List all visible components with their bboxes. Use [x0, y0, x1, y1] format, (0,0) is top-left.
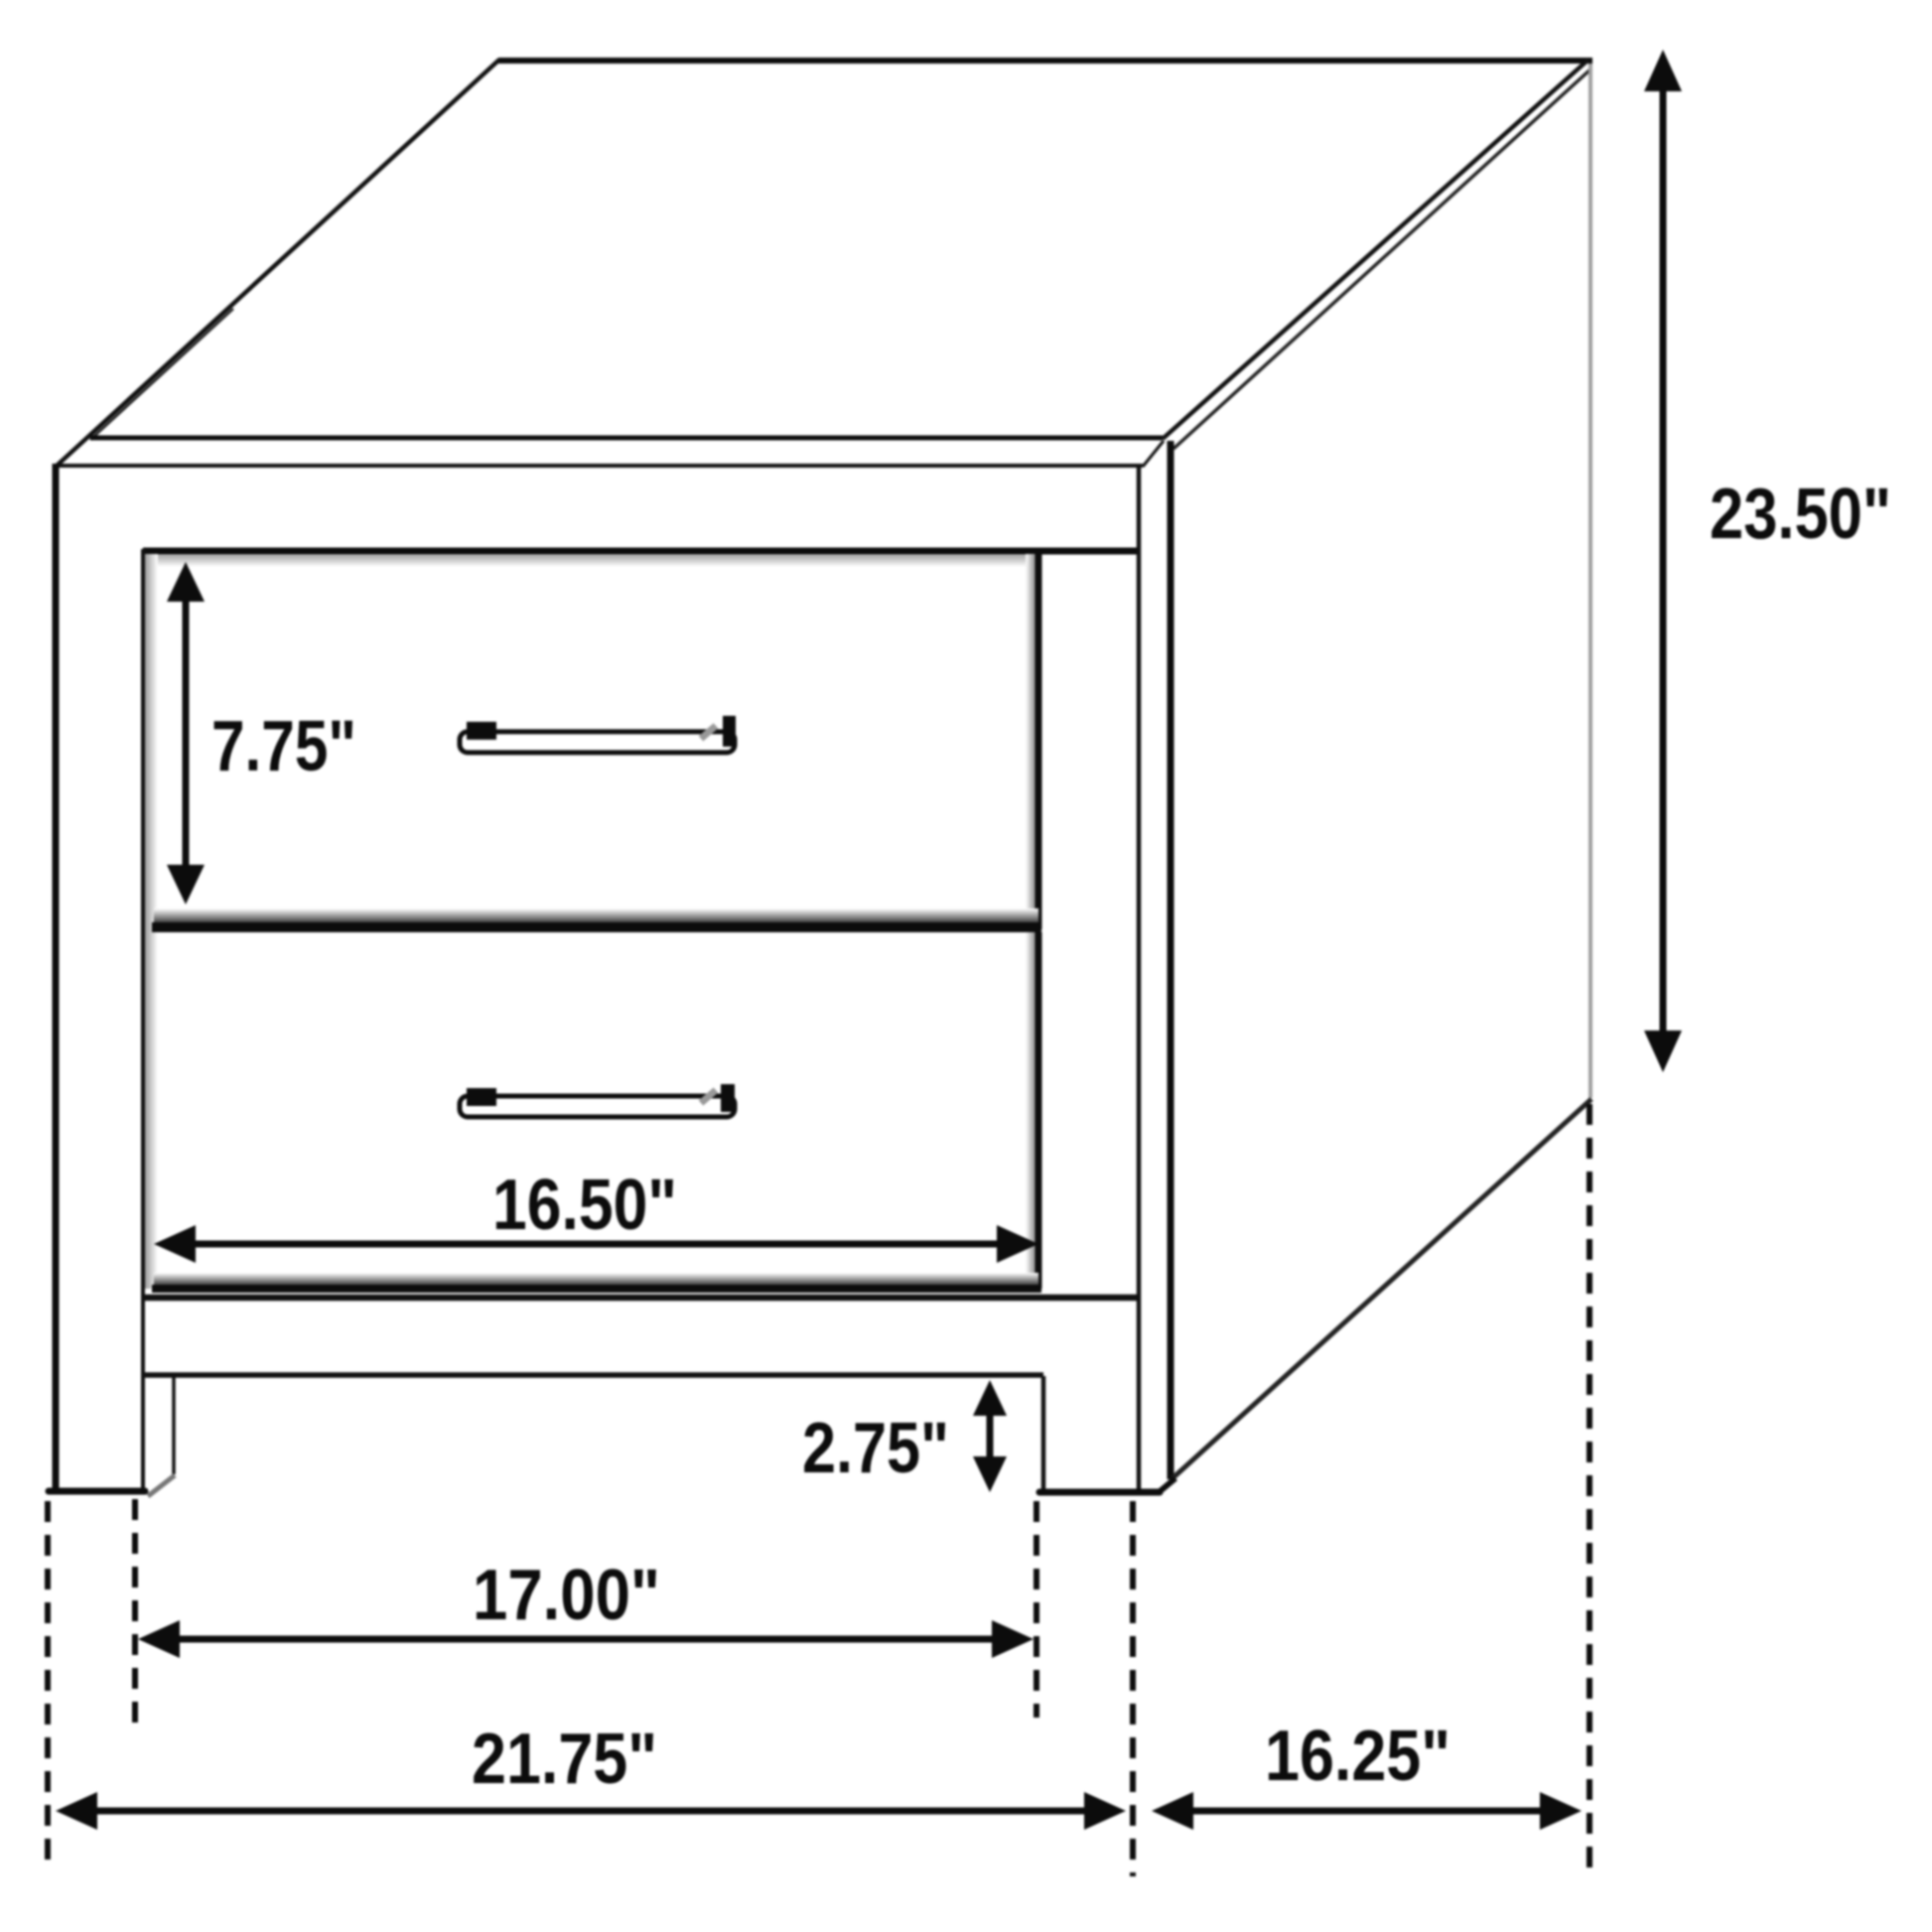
svg-text:2.75": 2.75"	[802, 1409, 949, 1488]
svg-text:16.25": 16.25"	[1265, 1717, 1450, 1796]
svg-text:21.75": 21.75"	[472, 1720, 657, 1799]
svg-text:16.50": 16.50"	[492, 1166, 677, 1245]
svg-text:17.00": 17.00"	[473, 1556, 660, 1635]
svg-text:7.75": 7.75"	[211, 707, 356, 786]
svg-text:23.50": 23.50"	[1710, 475, 1891, 554]
